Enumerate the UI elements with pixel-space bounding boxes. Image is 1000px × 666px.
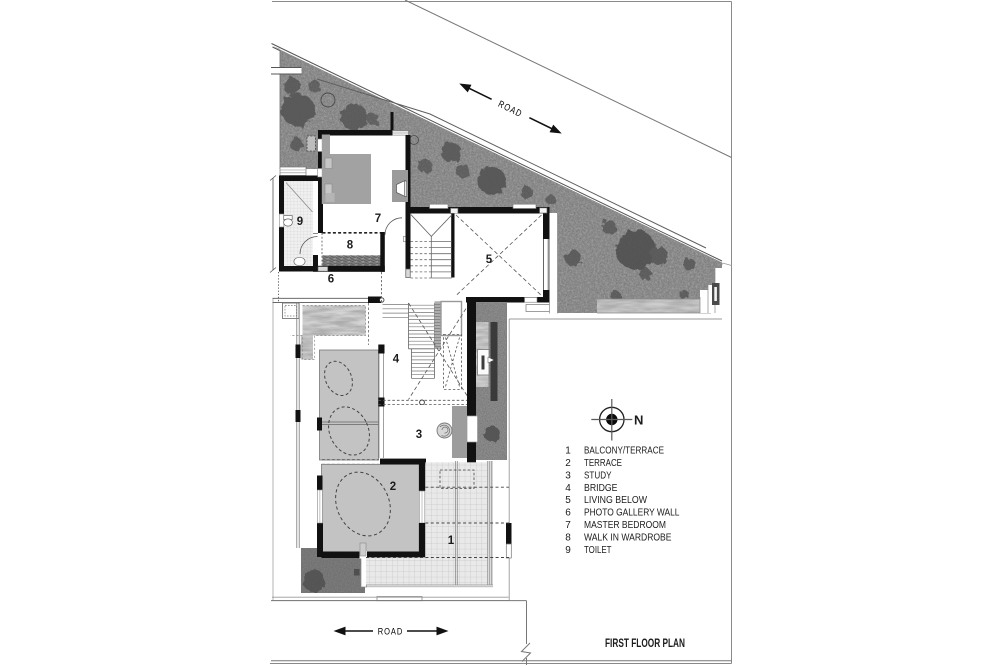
svg-text:3: 3 [565, 471, 571, 482]
svg-text:BRIDGE: BRIDGE [584, 483, 618, 494]
svg-text:4: 4 [565, 483, 571, 494]
svg-text:MASTER BEDROOM: MASTER BEDROOM [584, 520, 666, 531]
svg-text:8: 8 [565, 533, 571, 544]
svg-text:WALK IN WARDROBE: WALK IN WARDROBE [584, 533, 672, 544]
svg-text:2: 2 [565, 458, 571, 469]
svg-text:5: 5 [486, 254, 493, 266]
svg-text:6: 6 [328, 274, 334, 286]
svg-text:FIRST FLOOR PLAN: FIRST FLOOR PLAN [605, 636, 685, 650]
svg-text:9: 9 [565, 545, 571, 556]
svg-text:8: 8 [347, 240, 354, 252]
svg-text:BALCONY/TERRACE: BALCONY/TERRACE [584, 446, 664, 457]
svg-text:TOILET: TOILET [584, 545, 612, 556]
svg-text:PHOTO GALLERY WALL: PHOTO GALLERY WALL [584, 508, 680, 519]
svg-text:LIVING BELOW: LIVING BELOW [584, 495, 647, 506]
svg-text:4: 4 [393, 354, 400, 366]
svg-text:1: 1 [448, 535, 455, 547]
svg-text:6: 6 [565, 508, 571, 519]
svg-text:7: 7 [375, 213, 381, 225]
svg-text:7: 7 [565, 520, 571, 531]
svg-text:1: 1 [565, 446, 571, 457]
svg-text:TERRACE: TERRACE [584, 458, 622, 469]
svg-text:9: 9 [297, 216, 303, 228]
svg-text:ROAD: ROAD [378, 627, 404, 638]
svg-text:N: N [634, 413, 643, 428]
svg-text:STUDY: STUDY [584, 471, 612, 482]
svg-text:5: 5 [565, 495, 571, 506]
svg-text:2: 2 [390, 481, 396, 493]
svg-text:3: 3 [416, 429, 422, 441]
